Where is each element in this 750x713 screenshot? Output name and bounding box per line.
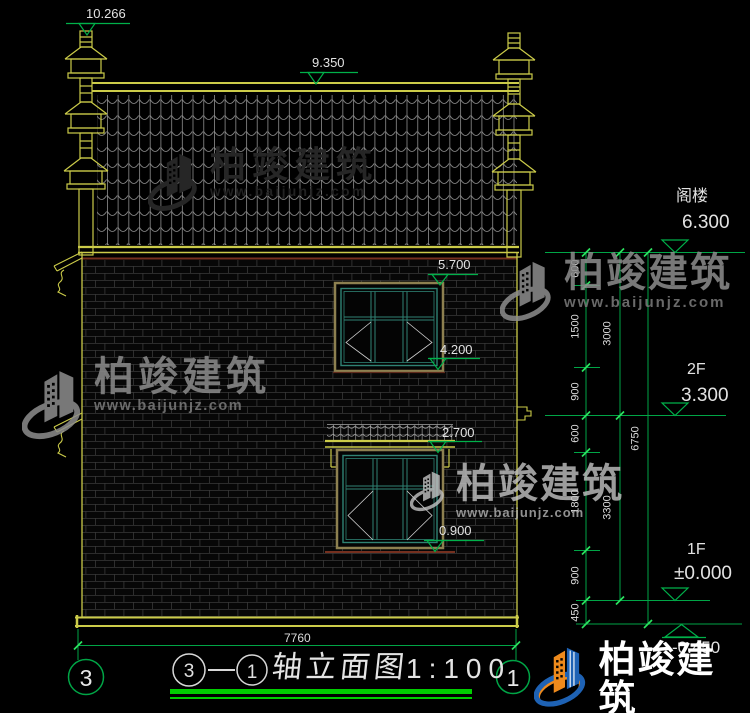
title-bubble-right-number: 1 — [235, 662, 269, 684]
axis-bubble-left-number: 3 — [66, 665, 106, 692]
cad-elevation-canvas: 10.266 9.350 5.700 4.200 2.700 0.900 阁楼 … — [0, 0, 750, 713]
base-plinth — [75, 615, 519, 628]
right-cornice — [517, 407, 531, 420]
drawing-scale: 1:100 — [406, 655, 511, 683]
lower-window — [325, 450, 455, 552]
level-f1-label: 1F — [687, 542, 706, 558]
roof — [78, 83, 519, 259]
marker-ridge: 9.350 — [312, 56, 345, 69]
level-base-value: -0.450 — [672, 639, 720, 656]
dim-1500: 1500 — [571, 295, 584, 359]
dim-3000: 3000 — [603, 302, 616, 366]
dim-1800: 1800 — [571, 470, 584, 534]
dim-6750: 6750 — [631, 407, 644, 471]
marker-canopy-level: 2.700 — [442, 426, 475, 439]
level-f2-label: 2F — [687, 362, 706, 378]
drawing-title: 轴立面图 — [270, 653, 409, 683]
left-eave-brackets — [54, 252, 82, 457]
marker-ornament-top: 10.266 — [86, 7, 126, 20]
dim-3300: 3300 — [603, 476, 616, 540]
level-f2-value: 3.300 — [681, 386, 729, 405]
dim-600-a: 600 — [571, 237, 584, 301]
marker-upper-window-sill: 4.200 — [440, 343, 473, 356]
marker-upper-window-head: 5.700 — [438, 258, 471, 271]
dim-600-b: 600 — [571, 402, 584, 466]
level-attic-value: 6.300 — [682, 213, 730, 232]
dim-bottom-width: 7760 — [284, 632, 311, 644]
level-attic-label: 阁楼 — [676, 189, 708, 205]
drawing-linework — [0, 0, 750, 713]
level-f1-value: ±0.000 — [674, 564, 732, 583]
dim-450: 450 — [571, 581, 584, 645]
marker-lower-window-sill: 0.900 — [439, 524, 472, 537]
title-bubble-left-number: 3 — [172, 661, 206, 683]
